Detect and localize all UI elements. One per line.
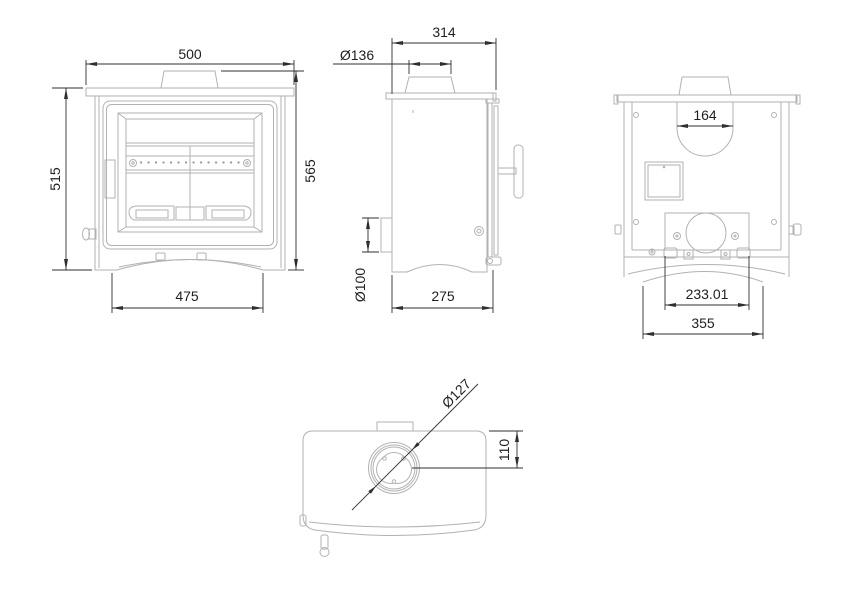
rear-inlet-spigot bbox=[381, 218, 392, 252]
front-edge-curve bbox=[309, 522, 480, 527]
dim-top-flue-diameter: Ø127 bbox=[352, 375, 478, 510]
dim-label-rear-base-width: 355 bbox=[691, 315, 715, 331]
top-view: Ø127 110 bbox=[300, 375, 523, 556]
door-clip-left bbox=[156, 253, 165, 260]
dim-label-side-bottom-depth: 275 bbox=[431, 288, 455, 304]
dim-label-rear-cutout-width: 164 bbox=[693, 107, 717, 123]
fixing-hole bbox=[772, 113, 777, 118]
fixing-hole bbox=[634, 220, 639, 225]
side-view: 314 Ø136 Ø100 275 bbox=[333, 24, 523, 313]
stove-body-side bbox=[392, 99, 487, 272]
base-arch-outer bbox=[628, 265, 785, 275]
rear-flue-tab bbox=[377, 422, 413, 431]
dim-front-top-width: 500 bbox=[86, 46, 294, 85]
door-clip-right bbox=[197, 253, 206, 260]
stove-technical-drawing: 500 515 565 475 bbox=[0, 0, 842, 595]
air-inlet-hole bbox=[686, 213, 726, 253]
rear-view: 164 233.01 355 bbox=[614, 77, 801, 339]
dim-rear-cutout-width: 164 bbox=[677, 107, 733, 126]
fixing-hole bbox=[634, 113, 639, 118]
dim-label-side-top-depth: 314 bbox=[432, 24, 456, 40]
front-geometry bbox=[83, 71, 295, 270]
dim-label-front-right-height: 565 bbox=[302, 159, 318, 183]
dim-side-bottom-depth: 275 bbox=[392, 270, 493, 313]
flue-collar-front bbox=[161, 71, 218, 88]
dim-label-front-left-height: 515 bbox=[47, 167, 63, 191]
base-arch-front bbox=[119, 260, 261, 268]
fixing-hole bbox=[772, 220, 777, 225]
flue-screw-hole bbox=[383, 457, 387, 461]
dim-label-front-bottom-width: 475 bbox=[175, 288, 199, 304]
inlet-screw-left bbox=[674, 233, 681, 240]
airwash-bolt-left bbox=[130, 160, 137, 167]
dim-label-top-flue-offset: 110 bbox=[496, 439, 512, 462]
dim-label-side-flue-diameter: Ø136 bbox=[340, 47, 374, 63]
flue-collar-rear bbox=[679, 77, 731, 95]
dim-front-bottom-width: 475 bbox=[112, 273, 263, 313]
dim-label-front-top-width: 500 bbox=[178, 46, 202, 62]
door-handle-bar bbox=[514, 145, 523, 198]
top-plate-front bbox=[86, 88, 294, 96]
drawing-canvas: 500 515 565 475 bbox=[0, 0, 842, 595]
inlet-screw-right bbox=[732, 233, 739, 240]
dim-label-side-inlet-diameter: Ø100 bbox=[352, 268, 368, 302]
base-clip-left bbox=[684, 250, 693, 259]
air-inlet-box bbox=[665, 213, 749, 250]
door-handle-front bbox=[83, 228, 90, 240]
top-plate-rear bbox=[617, 95, 797, 102]
front-view: 500 515 565 475 bbox=[47, 46, 318, 313]
bolt-detail-side bbox=[475, 227, 484, 236]
dim-side-inlet-diameter: Ø100 bbox=[352, 218, 379, 302]
rear-side-tab bbox=[615, 225, 621, 234]
door-edge-side bbox=[488, 103, 492, 257]
door-handle-top-stem bbox=[321, 535, 328, 549]
top-geometry bbox=[300, 422, 486, 557]
side-geometry bbox=[381, 77, 523, 272]
airwash-bolt-right bbox=[244, 160, 251, 167]
dim-top-flue-offset: 110 bbox=[412, 431, 523, 468]
door-latch-side bbox=[486, 257, 501, 265]
flue-collar-side bbox=[405, 77, 455, 93]
base-arch-inner bbox=[643, 272, 763, 283]
top-plate-side bbox=[386, 93, 496, 99]
door-handle-stem bbox=[498, 168, 516, 174]
base-clip-right bbox=[721, 250, 730, 259]
dim-front-left-height: 515 bbox=[47, 88, 92, 270]
dim-label-rear-inlet-box-width: 233.01 bbox=[686, 286, 729, 302]
